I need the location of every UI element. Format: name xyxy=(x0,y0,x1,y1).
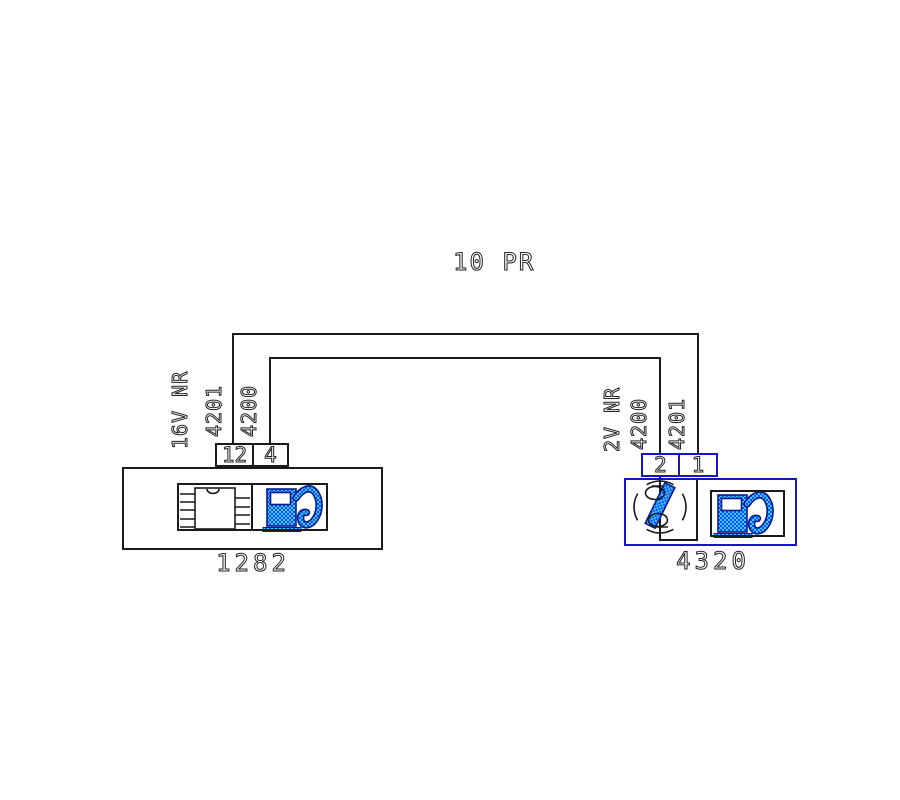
right-component-id: 4320 xyxy=(640,549,786,574)
right-pin-box: 2 1 xyxy=(641,453,718,477)
right-fuel-pump-box xyxy=(710,490,785,537)
wire-4200-label-left: 4200 xyxy=(238,385,260,437)
left-component-inner-box xyxy=(177,483,328,531)
pin-4-label: 4 xyxy=(264,444,277,466)
wire-4201-label-left: 4201 xyxy=(203,385,225,437)
pin-12-cell: 12 xyxy=(217,445,254,465)
fuel-pump-cell xyxy=(253,485,326,529)
pin-12-label: 12 xyxy=(222,444,247,466)
pin-2-label: 2 xyxy=(654,454,667,476)
diagram-title: 10 PR xyxy=(453,250,535,275)
wire-spec-label-right: 2V NR xyxy=(601,387,623,452)
left-component-id: 1282 xyxy=(180,551,326,576)
wiring-diagram-canvas: 10 PR 12 4 1282 16V NR 4201 4200 2 1 432… xyxy=(0,0,900,800)
pin-1-label: 1 xyxy=(692,454,705,476)
ic-chip-cell xyxy=(179,485,253,529)
wire-4200-label-right: 4200 xyxy=(628,398,650,450)
pin-1-cell: 1 xyxy=(680,455,716,475)
pin-4-cell: 4 xyxy=(254,445,287,465)
wiring-layer xyxy=(0,0,900,800)
wire-spec-label-left: 16V NR xyxy=(169,371,191,449)
wire-4201-label-right: 4201 xyxy=(666,398,688,450)
left-pin-box: 12 4 xyxy=(215,443,289,467)
pin-2-cell: 2 xyxy=(643,455,680,475)
